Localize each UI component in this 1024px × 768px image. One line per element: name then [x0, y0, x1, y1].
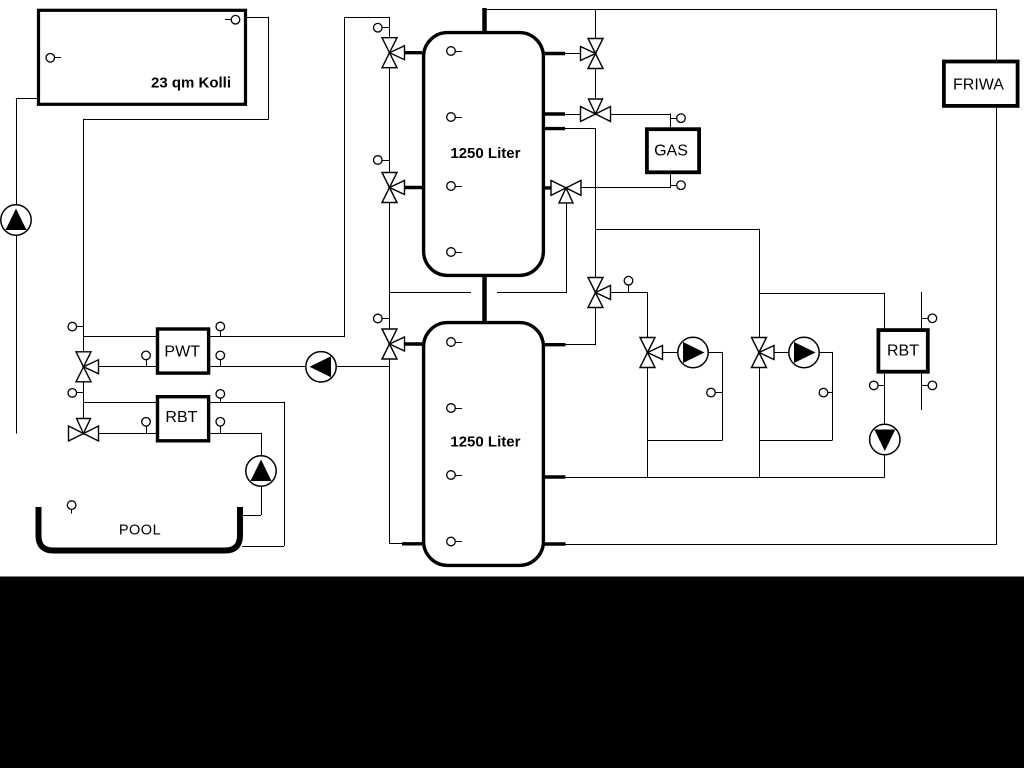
svg-text:RBT: RBT: [887, 343, 919, 360]
svg-text:23 qm Kolli: 23 qm Kolli: [151, 75, 231, 92]
svg-text:PWT: PWT: [164, 343, 200, 360]
svg-text:FRIWA: FRIWA: [953, 77, 1004, 94]
svg-text:RBT: RBT: [165, 409, 197, 426]
svg-text:GAS: GAS: [654, 143, 688, 160]
svg-text:1250 Liter: 1250 Liter: [450, 145, 520, 162]
svg-text:1250 Liter: 1250 Liter: [450, 434, 520, 451]
svg-text:POOL: POOL: [119, 522, 161, 538]
